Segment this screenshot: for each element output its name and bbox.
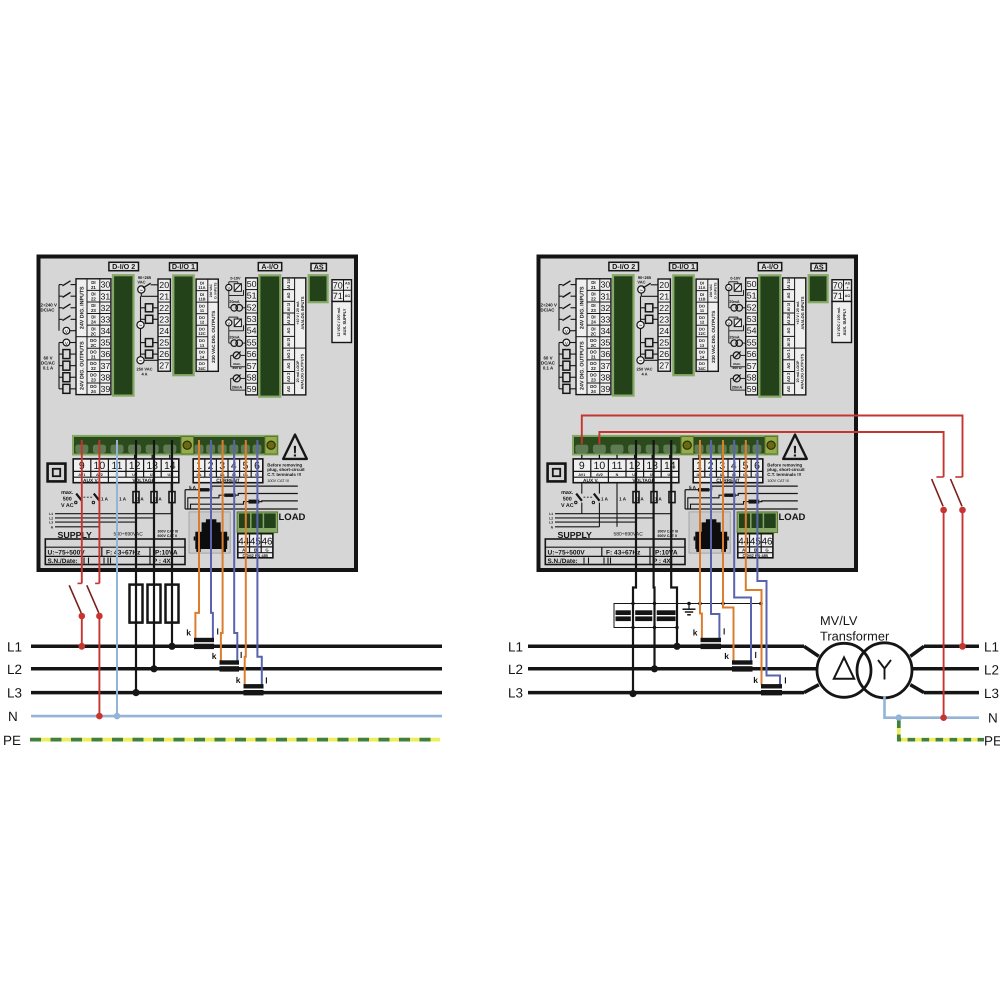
svg-text:MV/LV: MV/LV — [820, 613, 858, 628]
svg-text:l: l — [755, 650, 757, 660]
svg-text:N: N — [8, 709, 18, 724]
svg-text:k: k — [186, 628, 191, 638]
svg-text:l: l — [265, 676, 267, 686]
svg-text:L3: L3 — [7, 686, 22, 701]
svg-text:l: l — [217, 627, 219, 637]
svg-text:l: l — [240, 650, 242, 660]
svg-text:L1: L1 — [984, 639, 999, 654]
svg-text:k: k — [212, 651, 217, 661]
svg-text:L3: L3 — [508, 686, 523, 701]
svg-text:PE: PE — [984, 734, 1000, 749]
svg-text:Transformer: Transformer — [820, 629, 890, 644]
svg-text:k: k — [753, 675, 758, 685]
svg-text:l: l — [784, 676, 786, 686]
svg-text:L3: L3 — [984, 686, 999, 701]
svg-text:L2: L2 — [984, 663, 999, 678]
svg-text:l: l — [723, 627, 725, 637]
svg-text:L1: L1 — [508, 639, 523, 654]
svg-text:PE: PE — [3, 733, 21, 748]
svg-text:k: k — [693, 628, 698, 638]
svg-text:k: k — [724, 651, 729, 661]
svg-text:L2: L2 — [508, 662, 523, 677]
svg-text:k: k — [236, 675, 241, 685]
svg-text:L1: L1 — [7, 639, 22, 654]
svg-text:N: N — [988, 711, 998, 726]
svg-text:L2: L2 — [7, 662, 22, 677]
